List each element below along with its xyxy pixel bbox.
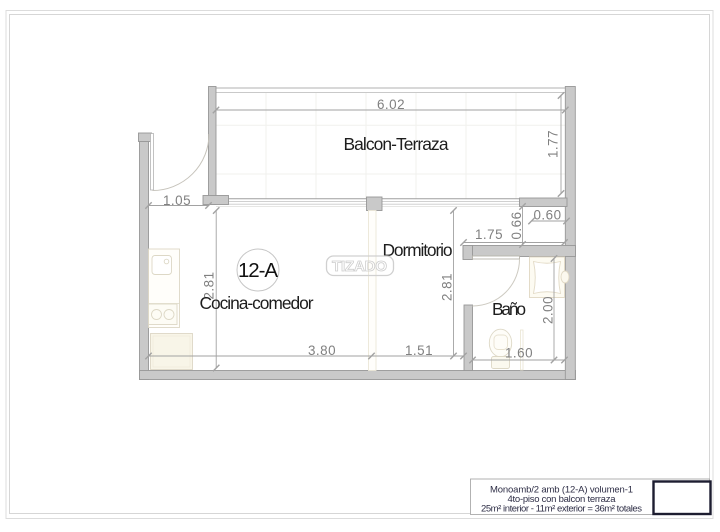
svg-text:2.00: 2.00 xyxy=(541,296,556,324)
svg-text:Baño: Baño xyxy=(492,299,526,319)
svg-text:3.80: 3.80 xyxy=(308,343,336,358)
svg-text:25m² interior - 11m² exterior: 25m² interior - 11m² exterior = 36m² tot… xyxy=(481,504,642,515)
svg-text:1.60: 1.60 xyxy=(505,346,533,361)
svg-text:Balcon-Terraza: Balcon-Terraza xyxy=(344,134,449,154)
svg-text:1.05: 1.05 xyxy=(163,193,191,208)
svg-text:1.75: 1.75 xyxy=(475,227,503,242)
svg-text:12-A: 12-A xyxy=(238,259,278,282)
svg-text:0.66: 0.66 xyxy=(509,211,524,239)
svg-text:6.02: 6.02 xyxy=(377,97,405,112)
svg-text:Dormitorio: Dormitorio xyxy=(383,240,453,260)
svg-text:0.60: 0.60 xyxy=(533,208,561,223)
svg-text:Cocina-comedor: Cocina-comedor xyxy=(200,293,314,313)
svg-text:1.77: 1.77 xyxy=(546,130,561,158)
svg-text:TIZADO: TIZADO xyxy=(332,258,388,275)
svg-text:1.51: 1.51 xyxy=(405,343,433,358)
svg-text:2.81: 2.81 xyxy=(440,273,455,301)
